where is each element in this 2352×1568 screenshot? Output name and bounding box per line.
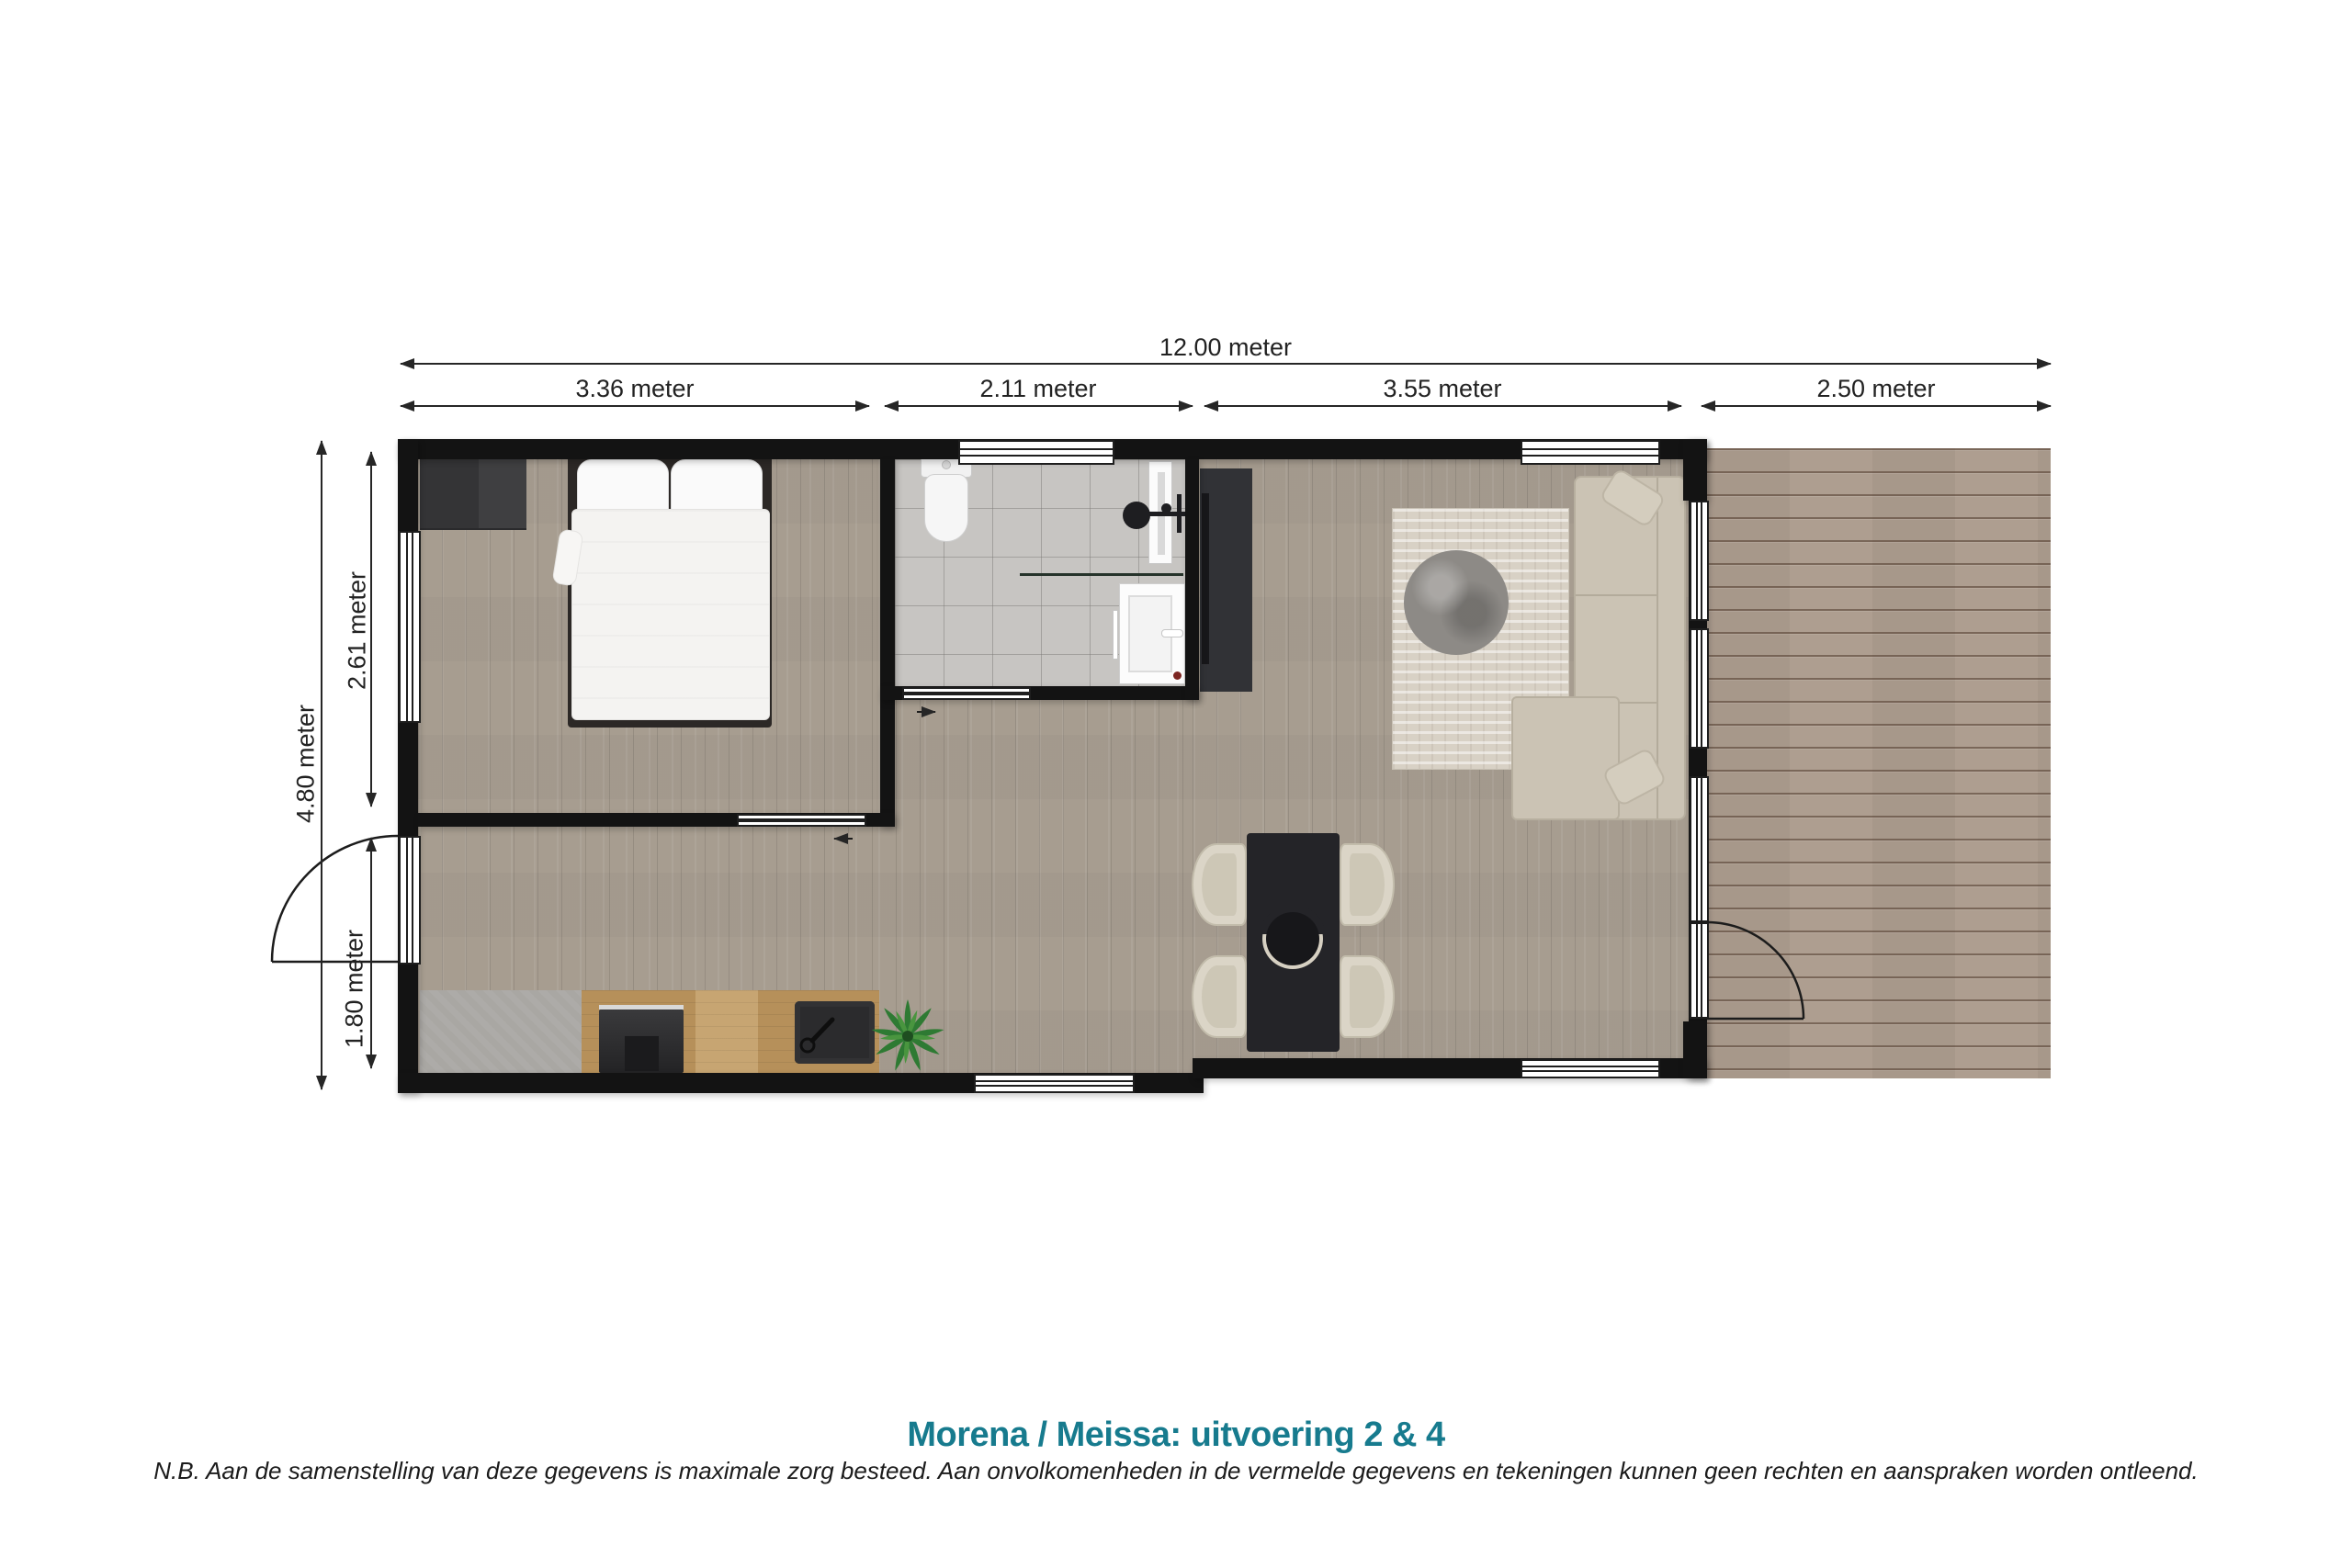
dining-chair-top-right — [1340, 843, 1395, 926]
wall-corner-bottom-right — [1683, 1021, 1707, 1078]
faucet-knob — [1161, 503, 1171, 513]
kitchen-sink — [795, 1001, 875, 1064]
wall-interior-bedroom-bathroom — [880, 459, 895, 827]
dim-label-total-width: 12.00 meter — [1134, 333, 1317, 362]
window-right-1 — [1690, 501, 1709, 621]
window-bottom-living — [1521, 1059, 1660, 1078]
toilet-flush-button — [942, 460, 951, 469]
window-right-3 — [1690, 776, 1709, 922]
plan-title: Morena / Meissa: uitvoering 2 & 4 — [0, 1416, 2352, 1455]
dim-label-left-segment-2: 1.80 meter — [341, 879, 369, 1100]
window-bottom-hall — [974, 1074, 1135, 1093]
wardrobe — [420, 453, 526, 530]
table-bowl — [1266, 912, 1319, 965]
toilet-bowl — [924, 474, 968, 542]
stove-inner — [625, 1036, 659, 1071]
window-right-2 — [1690, 628, 1709, 749]
kitchen-counter-concrete — [420, 990, 582, 1073]
dining-chair-top-left — [1192, 843, 1247, 926]
deck-terrace — [1707, 448, 2051, 1078]
plan-disclaimer: N.B. Aan de samenstelling van deze gegev… — [0, 1457, 2352, 1485]
dim-label-left-segment-1: 2.61 meter — [344, 521, 372, 741]
kitchen-counter-wood-light — [695, 990, 758, 1073]
dim-label-segment-2: 2.11 meter — [946, 375, 1130, 403]
wall-bathroom-right — [1185, 459, 1199, 700]
shower-faucet — [1161, 629, 1183, 637]
dim-label-segment-1: 3.36 meter — [543, 375, 727, 403]
dim-label-segment-4: 2.50 meter — [1784, 375, 1968, 403]
shower-drain — [1173, 671, 1182, 680]
tv-screen — [1202, 493, 1209, 664]
dim-label-segment-3: 3.55 meter — [1351, 375, 1534, 403]
rug-circle-pattern — [1404, 550, 1509, 655]
shower-glass-screen — [1020, 573, 1183, 576]
towel-bar — [1113, 610, 1118, 660]
wall-corner-top-right — [1683, 439, 1707, 501]
window-bedroom-left — [399, 531, 421, 723]
dining-chair-bottom-left — [1192, 955, 1247, 1038]
window-top-living — [1521, 440, 1660, 465]
bed-duvet — [571, 509, 770, 720]
deck-door-glazing — [1690, 922, 1709, 1019]
entrance-door-glazing — [399, 836, 421, 964]
window-top-bathroom — [958, 440, 1114, 465]
faucet-wall-bar — [1177, 494, 1182, 533]
dim-label-total-height: 4.80 meter — [292, 654, 321, 874]
sofa-chaise — [1511, 696, 1620, 820]
floorplan-page: { "dimensions": { "top_total": "12.00 me… — [0, 0, 2352, 1568]
dining-chair-bottom-right — [1340, 955, 1395, 1038]
bathroom-sliding-door — [902, 687, 1031, 700]
bedroom-sliding-door — [737, 814, 866, 827]
